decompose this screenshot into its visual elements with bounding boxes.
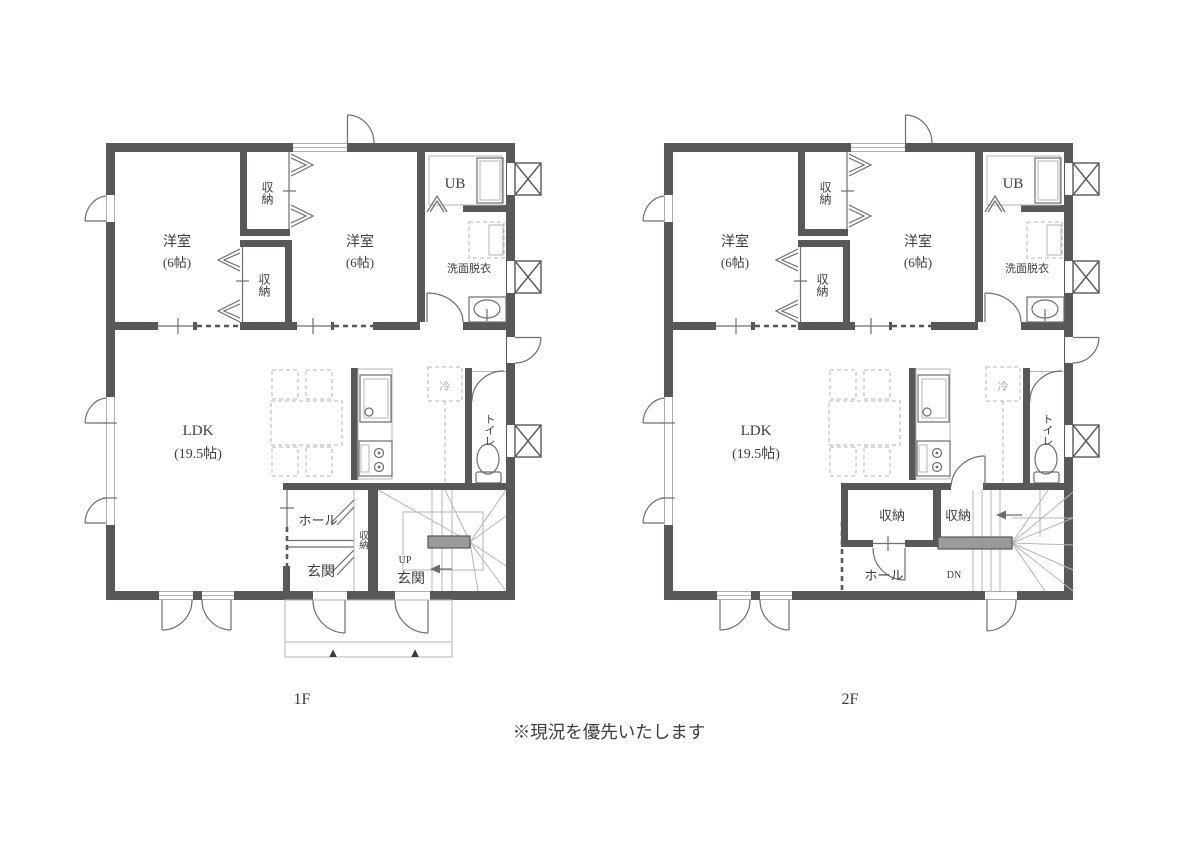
label-closet-a: 収納 bbox=[879, 508, 905, 523]
label-ldk-size: (19.5帖) bbox=[732, 446, 780, 462]
label-bedroom-right: 洋室 bbox=[346, 233, 374, 250]
label-washroom: 洗面脱衣 bbox=[447, 261, 491, 275]
label-unit-bath: UB bbox=[1003, 176, 1024, 192]
floor1-title: 1F bbox=[294, 691, 311, 708]
label-hall: ホール bbox=[298, 513, 337, 528]
floor1-plan: ▲ ▲ 洋室 (6帖) 収納 収納 洋室 (6帖) UB 洗面脱衣 LDK (1… bbox=[85, 115, 541, 708]
floor2-title: 2F bbox=[842, 691, 859, 708]
floor2-plan: 洋室 (6帖) 収納 収納 洋室 (6帖) UB 洗面脱衣 LDK (19.5帖… bbox=[643, 115, 1099, 708]
label-bedroom-right: 洋室 bbox=[904, 233, 932, 250]
porch-step-marker-icon: ▲ bbox=[327, 645, 340, 660]
footnote: ※現況を優先いたします bbox=[513, 722, 706, 742]
label-bedroom-right-size: (6帖) bbox=[346, 255, 374, 270]
label-entrance: 玄関 bbox=[307, 563, 335, 580]
label-refrigerator: 冷 bbox=[998, 380, 1009, 393]
label-ldk: LDK bbox=[741, 423, 772, 439]
label-ldk-size: (19.5帖) bbox=[174, 446, 222, 462]
label-stair-direction: UP bbox=[399, 555, 412, 566]
label-refrigerator: 冷 bbox=[440, 380, 451, 393]
label-bedroom-left: 洋室 bbox=[163, 233, 191, 250]
label-washroom: 洗面脱衣 bbox=[1005, 261, 1049, 275]
porch-step-marker-icon: ▲ bbox=[409, 645, 422, 660]
label-ldk: LDK bbox=[183, 423, 214, 439]
label-entrance-stair-side: 玄関 bbox=[397, 570, 425, 587]
label-stair-direction: DN bbox=[947, 570, 961, 581]
label-bedroom-left-size: (6帖) bbox=[163, 255, 191, 270]
floorplan-page: ▲ ▲ 洋室 (6帖) 収納 収納 洋室 (6帖) UB 洗面脱衣 LDK (1… bbox=[0, 0, 1191, 842]
label-unit-bath: UB bbox=[445, 176, 466, 192]
label-hall: ホール bbox=[864, 568, 903, 583]
label-closet-upper: 収納 bbox=[818, 181, 832, 205]
label-closet-lower: 収納 bbox=[815, 273, 829, 297]
label-toilet: トイレ bbox=[483, 414, 495, 447]
label-closet-upper: 収納 bbox=[260, 181, 274, 205]
label-closet-lower: 収納 bbox=[257, 273, 271, 297]
label-toilet: トイレ bbox=[1041, 414, 1053, 447]
floorplan-canvas: ▲ ▲ 洋室 (6帖) 収納 収納 洋室 (6帖) UB 洗面脱衣 LDK (1… bbox=[0, 0, 1191, 842]
label-bedroom-right-size: (6帖) bbox=[904, 255, 932, 270]
label-bedroom-left: 洋室 bbox=[721, 233, 749, 250]
label-closet-b: 収納 bbox=[945, 508, 971, 523]
label-bedroom-left-size: (6帖) bbox=[721, 255, 749, 270]
entrance-porch: ▲ ▲ bbox=[285, 592, 452, 661]
label-closet-hall: 収納 bbox=[357, 530, 369, 551]
